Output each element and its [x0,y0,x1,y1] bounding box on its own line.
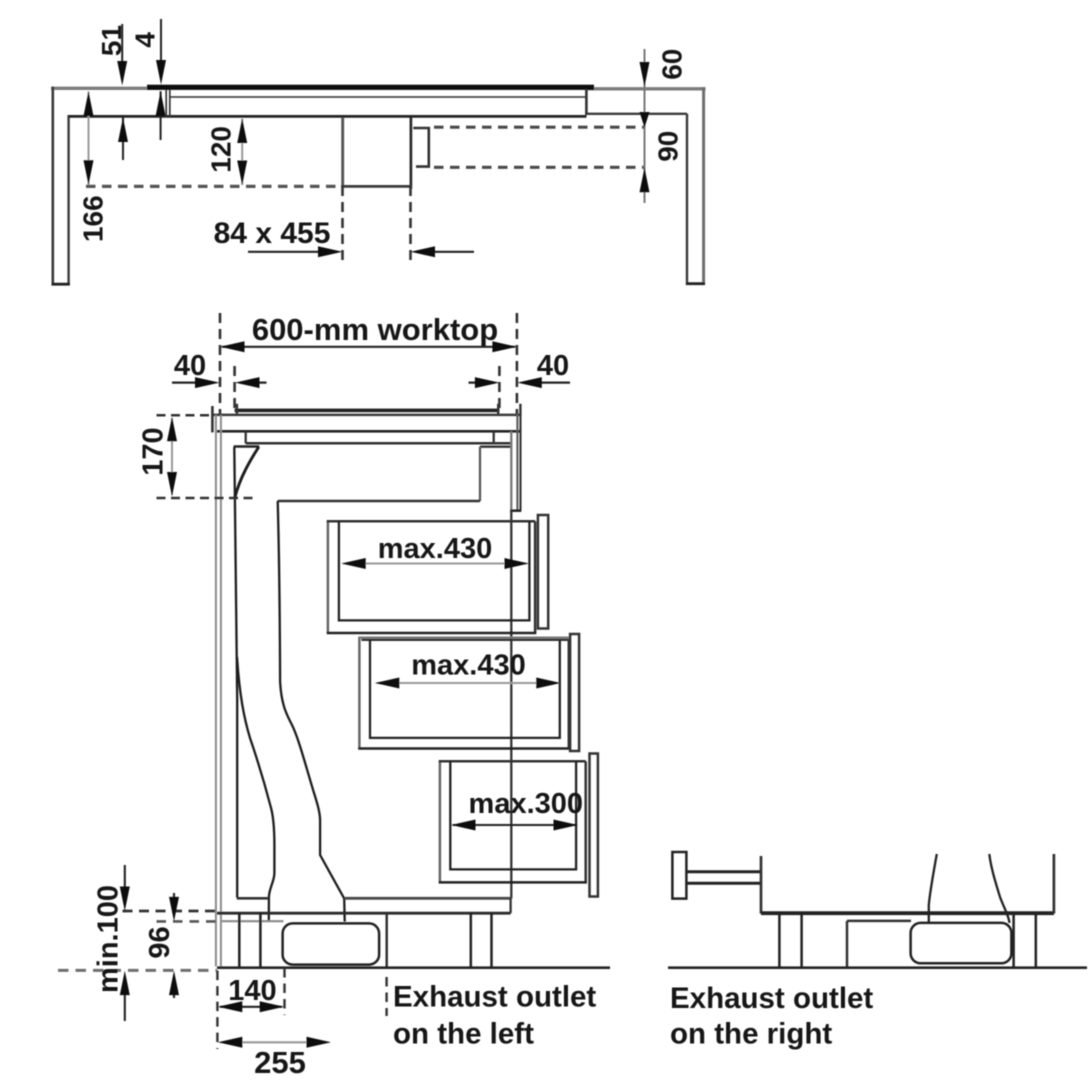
svg-text:255: 255 [254,1045,306,1080]
svg-text:170: 170 [138,427,170,475]
svg-text:120: 120 [206,126,237,173]
svg-text:40: 40 [174,350,206,382]
svg-text:90: 90 [653,131,684,162]
svg-text:max.430: max.430 [378,533,493,565]
svg-text:60: 60 [657,49,688,80]
svg-text:max.430: max.430 [411,650,526,682]
svg-text:96: 96 [144,926,176,958]
svg-text:Exhaust outlet: Exhaust outlet [393,981,596,1014]
svg-text:166: 166 [78,195,109,242]
svg-text:Exhaust outlet: Exhaust outlet [670,982,873,1015]
svg-text:140: 140 [228,975,276,1007]
svg-text:600-mm worktop: 600-mm worktop [252,312,498,347]
svg-text:min.100: min.100 [93,885,125,993]
svg-text:4: 4 [130,32,161,48]
svg-text:max.300: max.300 [469,788,584,820]
svg-text:on the right: on the right [670,1018,832,1051]
svg-text:on the left: on the left [393,1018,534,1051]
svg-text:84 x 455: 84 x 455 [214,217,331,250]
